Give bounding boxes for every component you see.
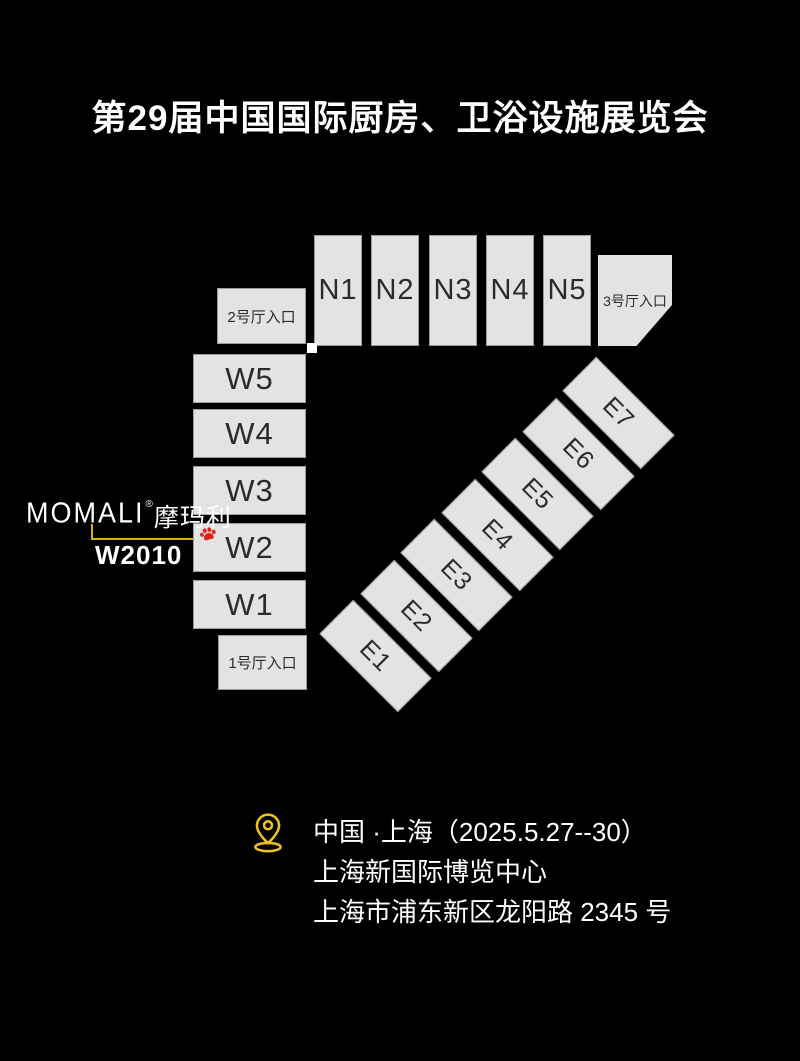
entrance-hall1: 1号厅入口 [218,635,307,690]
hall-w1: W1 [193,580,306,629]
map-connector-square [307,343,317,353]
entrance-hall2: 2号厅入口 [217,288,306,344]
entrance-hall3: 3号厅入口 [598,255,672,346]
page-title: 第29届中国国际厨房、卫浴设施展览会 [0,90,800,141]
hall-n3: N3 [429,235,477,346]
venue-name: 上海新国际博览中心 [313,852,671,892]
paw-print-icon [199,526,217,543]
hall-w5: W5 [193,354,306,403]
booth-number: W2010 [95,540,179,571]
brand-latin-wordmark: MOMALI [26,497,145,530]
venue-text: 中国 ·上海（2025.5.27--30） 上海新国际博览中心 上海市浦东新区龙… [313,812,671,932]
venue-city-dates: 中国 ·上海（2025.5.27--30） [313,812,671,852]
exhibition-poster: 第29届中国国际厨房、卫浴设施展览会 N1 N2 N3 N4 N5 W5 W4 … [0,0,800,1061]
location-pin-icon [249,811,287,853]
hall-w4: W4 [193,409,306,458]
hall-n1: N1 [314,235,362,346]
brand-logo: MOMALI ® 摩玛利 [26,498,186,534]
brand-cjk-wordmark: 摩玛利 [154,498,232,534]
hall-n5: N5 [543,235,591,346]
hall-n2: N2 [371,235,419,346]
registered-trademark-icon: ® [146,500,153,510]
hall-n4: N4 [486,235,534,346]
venue-address: 上海市浦东新区龙阳路 2345 号 [313,892,671,932]
